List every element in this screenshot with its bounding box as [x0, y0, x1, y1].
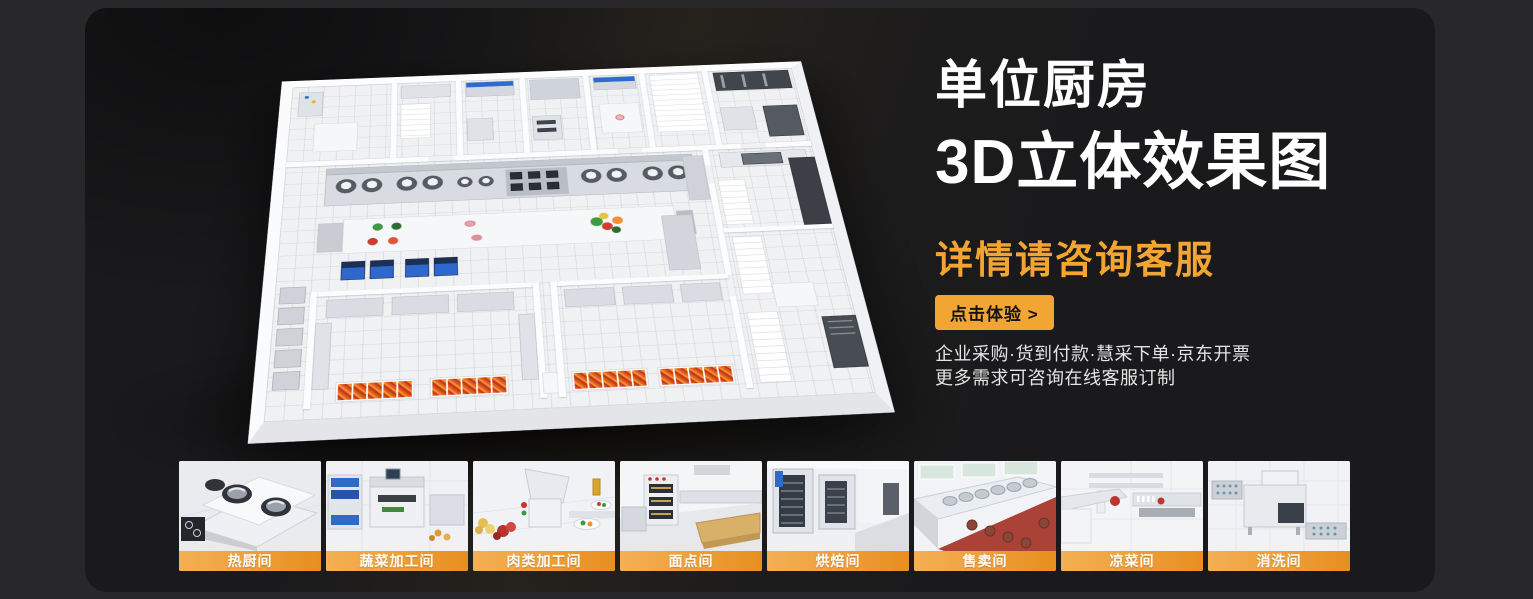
decor-shape — [506, 522, 516, 532]
decor-shape — [335, 379, 415, 403]
decor-shape — [1139, 508, 1195, 517]
decor-shape — [405, 258, 429, 278]
banner-card: 单位厨房 3D立体效果图 详情请咨询客服 点击体验 > 企业采购·货到付款·慧采… — [85, 8, 1435, 592]
decor-shape — [1004, 461, 1038, 475]
decor-shape — [1229, 485, 1232, 488]
thumb-label-serving-room: 售卖间 — [914, 551, 1056, 571]
decor-shape — [740, 143, 766, 149]
decor-shape — [775, 471, 783, 487]
thumb-meat-processing[interactable]: 肉类加工间 — [473, 461, 615, 571]
decor-shape — [353, 383, 367, 400]
decor-shape — [492, 376, 506, 393]
decor-shape — [703, 366, 718, 382]
decor-shape — [569, 511, 615, 518]
decor-shape — [519, 78, 530, 152]
decor-shape — [378, 495, 416, 502]
decor-shape — [465, 81, 514, 98]
decor-shape — [1248, 527, 1252, 535]
decor-shape — [1229, 492, 1232, 495]
decor-shape — [1223, 492, 1226, 495]
decor-shape — [657, 364, 736, 387]
decor-shape — [522, 511, 527, 516]
decor-shape — [181, 517, 205, 541]
thumb-label-pastry-room: 面点间 — [620, 551, 762, 571]
decor-shape — [571, 368, 650, 391]
decor-shape — [248, 61, 895, 444]
serving-room-thumb-image — [914, 461, 1056, 551]
decor-shape — [311, 323, 332, 390]
thumb-washing-room[interactable]: 消洗间 — [1208, 461, 1350, 571]
washing-room-thumb-image — [1208, 461, 1350, 551]
thumb-baking-room[interactable]: 烘焙间 — [767, 461, 909, 571]
decor-shape — [1235, 485, 1238, 488]
decor-shape — [602, 503, 606, 507]
thumb-label-washing-room: 消洗间 — [1208, 551, 1350, 571]
decor-shape — [741, 152, 783, 165]
thumb-cold-dish-room[interactable]: 凉菜间 — [1061, 461, 1203, 571]
decor-shape — [1320, 533, 1323, 536]
decor-shape — [326, 297, 384, 318]
decor-shape — [1327, 527, 1330, 530]
thumb-vegetable-processing[interactable]: 蔬菜加工间 — [326, 461, 468, 571]
decor-shape — [1296, 527, 1300, 535]
decor-shape — [434, 257, 458, 276]
decor-shape — [386, 469, 400, 479]
decor-shape — [825, 481, 847, 523]
decor-shape — [674, 368, 689, 384]
cta-button[interactable]: 点击体验 > — [935, 295, 1054, 330]
decor-shape — [763, 105, 805, 137]
decor-shape — [312, 122, 358, 152]
thumb-label-vegetable-processing: 蔬菜加工间 — [326, 551, 468, 571]
decor-shape — [772, 282, 819, 308]
decor-shape — [477, 377, 491, 394]
decor-shape — [1158, 498, 1165, 505]
decor-shape — [428, 155, 453, 161]
decor-shape — [277, 307, 305, 325]
thumb-serving-room[interactable]: 售卖间 — [914, 461, 1056, 571]
decor-shape — [1327, 533, 1330, 536]
decor-shape — [456, 81, 464, 155]
decor-shape — [622, 507, 646, 531]
decor-shape — [962, 463, 996, 477]
hero-subtitle: 详情请咨询客服 — [935, 242, 1405, 280]
decor-shape — [382, 507, 404, 512]
baking-room-thumb-image — [767, 461, 909, 551]
decor-shape — [1217, 485, 1220, 488]
decor-shape — [1334, 527, 1337, 530]
decor-shape — [432, 379, 446, 396]
decor-shape — [447, 378, 461, 395]
decor-shape — [331, 478, 359, 487]
hero-title-line1: 单位厨房 — [935, 60, 1405, 112]
decor-shape — [660, 368, 675, 384]
decor-shape — [430, 495, 464, 525]
decor-shape — [1334, 533, 1337, 536]
decor-shape — [462, 378, 476, 395]
room-thumbnails-row: 热厨间 蔬菜加工间 — [179, 461, 1350, 571]
decor-shape — [275, 328, 303, 347]
thumb-pastry-room[interactable]: 面点间 — [620, 461, 762, 571]
decor-shape — [680, 282, 723, 302]
decor-shape — [331, 490, 359, 499]
decor-shape — [529, 78, 581, 100]
decor-shape — [1217, 492, 1220, 495]
decor-shape — [651, 487, 671, 489]
decor-shape — [718, 179, 754, 225]
decor-shape — [521, 502, 527, 508]
decor-shape — [985, 526, 995, 536]
thumb-label-cold-dish-room: 凉菜间 — [1061, 551, 1203, 571]
thumb-label-hot-kitchen: 热厨间 — [179, 551, 321, 571]
decor-shape — [651, 513, 671, 515]
decor-shape — [649, 73, 709, 132]
decor-shape — [457, 292, 515, 313]
decor-shape — [444, 534, 451, 541]
decor-shape — [967, 520, 977, 530]
decor-shape — [617, 148, 643, 154]
decor-shape — [485, 524, 495, 534]
hot-kitchen-thumb-image — [179, 461, 321, 551]
decor-shape — [821, 315, 869, 368]
decor-shape — [331, 515, 359, 525]
decor-shape — [1039, 518, 1049, 528]
decor-shape — [383, 381, 397, 398]
decor-shape — [593, 479, 600, 495]
decor-shape — [370, 260, 394, 280]
decor-shape — [574, 373, 588, 389]
decor-shape — [975, 490, 989, 499]
note-line2: 更多需求可咨询在线客服订制 — [935, 368, 1176, 388]
decor-shape — [400, 103, 431, 139]
decor-shape — [528, 171, 541, 179]
decor-shape — [316, 223, 343, 253]
decor-shape — [475, 526, 483, 534]
decor-shape — [680, 491, 762, 503]
decor-shape — [1223, 485, 1226, 488]
decor-shape — [337, 384, 351, 401]
thumb-hot-kitchen[interactable]: 热厨间 — [179, 461, 321, 571]
hero-title-line2: 3D立体效果图 — [935, 132, 1405, 194]
decor-shape — [1306, 523, 1346, 539]
decor-shape — [1212, 481, 1242, 499]
decor-shape — [767, 461, 909, 469]
decor-shape — [597, 502, 601, 506]
decor-shape — [1089, 483, 1163, 488]
decor-shape — [1021, 538, 1031, 548]
decor-shape — [1142, 496, 1145, 502]
decor-shape — [651, 500, 671, 502]
decor-shape — [632, 370, 647, 386]
decor-shape — [593, 76, 637, 90]
decor-shape — [398, 381, 412, 398]
meat-processing-thumb-image — [473, 461, 615, 551]
decor-shape — [603, 371, 618, 387]
decor-shape — [1313, 527, 1316, 530]
decor-shape — [342, 205, 679, 254]
decor-shape — [662, 477, 666, 481]
decor-shape — [1003, 532, 1013, 542]
decor-shape — [205, 479, 225, 491]
decor-shape — [1278, 503, 1304, 523]
decor-shape — [529, 182, 542, 190]
decor-shape — [588, 372, 603, 388]
decor-shape — [694, 465, 730, 475]
decor-shape — [297, 92, 323, 117]
decor-shape — [529, 499, 561, 527]
thumb-label-baking-room: 烘焙间 — [767, 551, 909, 571]
decor-shape — [510, 172, 523, 180]
thumb-label-meat-processing: 肉类加工间 — [473, 551, 615, 571]
decor-shape — [392, 294, 450, 315]
decor-shape — [435, 530, 442, 537]
decor-shape — [920, 465, 954, 479]
decor-shape — [655, 477, 659, 481]
vegetable-processing-thumb-image — [326, 461, 468, 551]
decor-shape — [883, 483, 899, 515]
pastry-room-thumb-image — [620, 461, 762, 551]
decor-shape — [718, 366, 734, 382]
decor-shape — [272, 371, 301, 391]
decor-shape — [430, 374, 509, 398]
decor-shape — [747, 311, 793, 383]
decor-shape — [617, 370, 632, 386]
decor-shape — [591, 501, 611, 510]
decor-shape — [467, 118, 494, 141]
decor-shape — [511, 183, 524, 191]
decor-shape — [1061, 509, 1091, 543]
decor-shape — [279, 287, 306, 305]
decor-shape — [1023, 479, 1037, 488]
decor-shape — [1147, 496, 1150, 502]
decor-shape — [1152, 496, 1155, 502]
decor-shape — [720, 106, 758, 130]
note-line1: 企业采购·货到付款·慧采下单·京东开票 — [935, 344, 1250, 364]
decor-shape — [537, 128, 556, 133]
decor-shape — [1313, 533, 1316, 536]
decor-shape — [1110, 496, 1120, 506]
decor-shape — [1137, 496, 1140, 502]
decor-shape — [390, 83, 397, 158]
decor-shape — [581, 521, 586, 526]
decor-shape — [493, 532, 501, 540]
decor-shape — [574, 519, 600, 530]
decor-shape — [788, 157, 832, 225]
floorplan-3d-render — [248, 61, 895, 444]
decor-shape — [368, 382, 382, 399]
decor-shape — [648, 477, 652, 481]
decor-shape — [274, 349, 302, 368]
decor-shape — [564, 287, 616, 307]
decor-shape — [943, 497, 957, 506]
decor-shape — [588, 522, 593, 527]
decor-shape — [1320, 527, 1323, 530]
decor-shape — [661, 214, 701, 270]
decor-shape — [429, 535, 435, 541]
decor-shape — [401, 84, 451, 99]
decor-shape — [1235, 492, 1238, 495]
decor-shape — [959, 493, 973, 502]
decor-shape — [1089, 473, 1163, 478]
decor-shape — [537, 120, 556, 125]
cold-dish-room-thumb-image — [1061, 461, 1203, 551]
decor-shape — [546, 170, 559, 178]
decor-shape — [622, 284, 675, 304]
decor-shape — [723, 224, 833, 233]
decor-shape — [732, 236, 774, 295]
decor-shape — [689, 367, 704, 383]
decor-shape — [547, 182, 560, 190]
decor-shape — [991, 486, 1005, 495]
hero-text-block: 单位厨房 3D立体效果图 详情请咨询客服 点击体验 > 企业采购·货到付款·慧采… — [935, 60, 1405, 391]
decor-shape — [340, 261, 365, 281]
decor-shape — [1007, 483, 1021, 492]
